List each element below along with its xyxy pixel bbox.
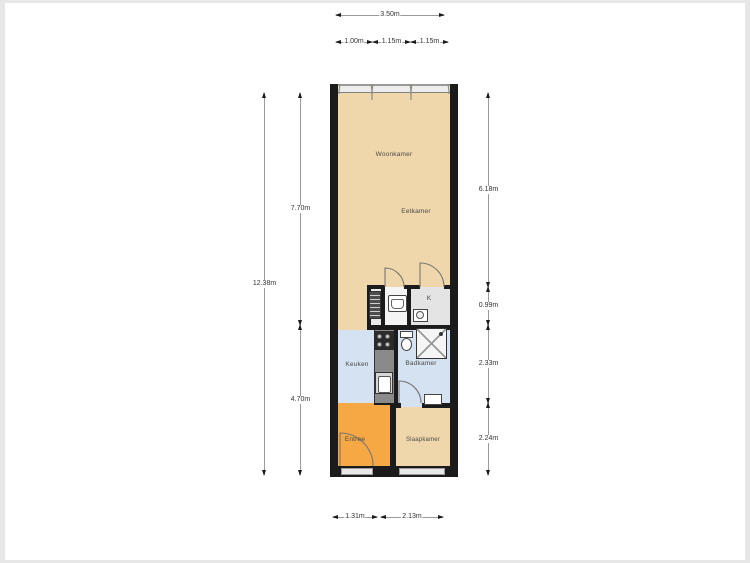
room-label-badkamer: Badkamer bbox=[396, 360, 446, 368]
dim-right-2: 0.99m bbox=[484, 287, 493, 325]
arrow-icon bbox=[262, 92, 266, 98]
dim-top-seg-2: 1.15m bbox=[373, 38, 410, 47]
window-swing-arc bbox=[411, 84, 449, 94]
arrow-icon bbox=[486, 324, 490, 330]
edge-band-right bbox=[745, 0, 750, 563]
arrow-icon bbox=[332, 515, 338, 519]
dim-top-seg-3: 1.15m bbox=[411, 38, 448, 47]
dim-label: 3.50m bbox=[379, 11, 400, 19]
arrow-icon bbox=[486, 470, 490, 476]
dim-label: 2.33m bbox=[478, 360, 499, 368]
arrow-icon bbox=[298, 324, 302, 330]
dim-label: 1.15m bbox=[381, 38, 402, 46]
dim-label: 12.38m bbox=[252, 280, 277, 288]
arrow-icon bbox=[372, 40, 378, 44]
dim-bottom-2: 2.13m bbox=[381, 513, 443, 522]
dim-label: 4.70m bbox=[290, 396, 311, 404]
dim-right-4: 2.24m bbox=[484, 403, 493, 475]
dim-label: 7.70m bbox=[290, 205, 311, 213]
arrow-icon bbox=[486, 92, 490, 98]
arrow-icon bbox=[335, 40, 341, 44]
dim-right-1: 6.18m bbox=[484, 93, 493, 287]
floorplan-page: 3.50m 1.00m 1.15m 1.15m 12.38m 7.70m 4.7… bbox=[0, 0, 750, 563]
room-label-entree: Entree bbox=[338, 436, 372, 444]
room-label-kast: K bbox=[411, 295, 447, 303]
room-label-slaapkamer: Slaapkamer bbox=[396, 436, 450, 444]
dim-label: 1.15m bbox=[419, 38, 440, 46]
dim-top-seg-1: 1.00m bbox=[336, 38, 372, 47]
arrow-icon bbox=[380, 515, 386, 519]
swing-arcs-overlay bbox=[330, 84, 458, 477]
arrow-icon bbox=[298, 470, 302, 476]
dim-label: 1.31m bbox=[344, 513, 365, 521]
dim-left-lower: 4.70m bbox=[296, 325, 305, 475]
room-label-woonkamer: Woonkamer bbox=[338, 151, 450, 159]
arrow-icon bbox=[298, 92, 302, 98]
arrow-icon bbox=[439, 13, 445, 17]
arrow-icon bbox=[410, 40, 416, 44]
room-label-keuken: Keuken bbox=[338, 361, 376, 369]
arrow-icon bbox=[486, 286, 490, 292]
dim-left-upper: 7.70m bbox=[296, 93, 305, 325]
window-swing-arc bbox=[372, 84, 411, 94]
arrow-icon bbox=[443, 40, 449, 44]
dim-top-total: 3.50m bbox=[336, 11, 444, 20]
dim-left-total: 12.38m bbox=[260, 93, 269, 475]
door-swing-arc bbox=[385, 268, 404, 287]
edge-band-left bbox=[0, 0, 5, 563]
door-swing-arc bbox=[420, 263, 444, 287]
arrow-icon bbox=[438, 515, 444, 519]
dim-label: 2.13m bbox=[401, 513, 422, 521]
arrow-icon bbox=[335, 13, 341, 17]
window-swing-arc bbox=[339, 84, 372, 94]
edge-band-top bbox=[0, 0, 750, 3]
dim-label: 1.00m bbox=[343, 38, 364, 46]
arrow-icon bbox=[486, 402, 490, 408]
dim-right-3: 2.33m bbox=[484, 325, 493, 403]
arrow-icon bbox=[262, 470, 266, 476]
dim-label: 6.18m bbox=[478, 186, 499, 194]
room-label-eetkamer: Eetkamer bbox=[360, 208, 472, 216]
dim-bottom-1: 1.31m bbox=[333, 513, 377, 522]
dim-label: 0.99m bbox=[478, 302, 499, 310]
arrow-icon bbox=[372, 515, 378, 519]
dim-label: 2.24m bbox=[478, 435, 499, 443]
door-swing-arc bbox=[399, 381, 421, 403]
window-divider-tick bbox=[372, 93, 411, 100]
